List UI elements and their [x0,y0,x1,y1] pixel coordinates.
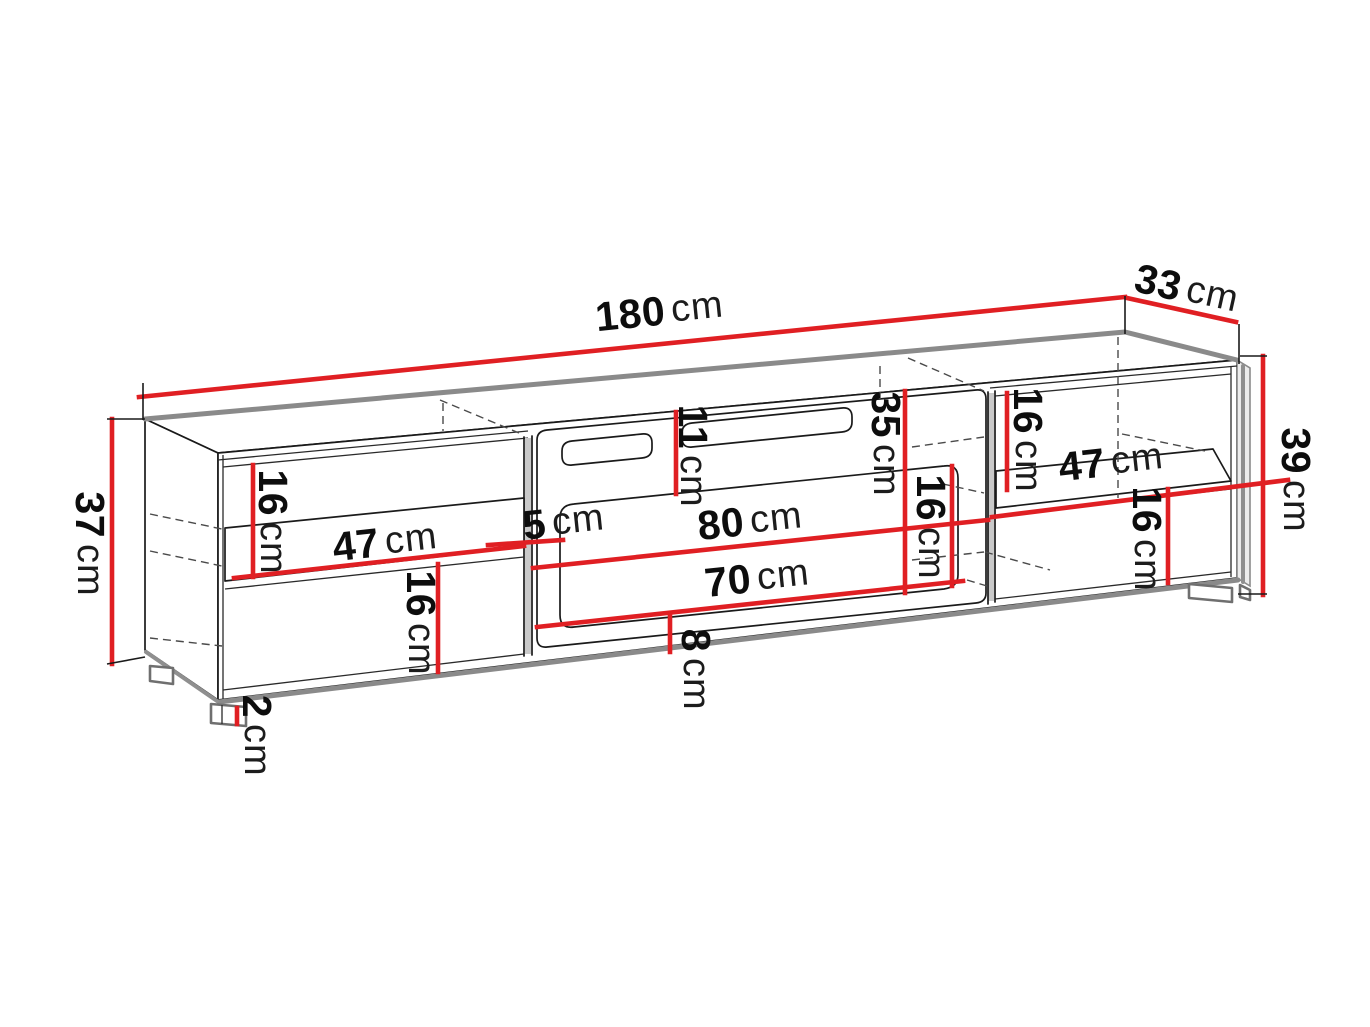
dimension-label-right-top-clearance: 16 cm [1005,387,1051,492]
svg-text:cm: cm [748,494,805,541]
svg-text:47: 47 [330,519,381,570]
svg-text:cm: cm [669,283,726,330]
dimension-label-height-left: 37 cm [67,491,113,596]
svg-text:cm: cm [1007,440,1049,493]
dimension-label-slot-top-offset: 11 cm [670,405,716,508]
svg-text:5: 5 [520,500,548,548]
foot-back-left [150,666,173,684]
svg-text:8: 8 [673,629,719,652]
svg-text:cm: cm [755,551,812,598]
dimension-label-height-right: 39 cm [1273,427,1319,532]
svg-text:16: 16 [1124,486,1170,533]
svg-text:cm: cm [69,544,111,597]
furniture-dimension-diagram: 180 cm 33 cm 37 cm 39 cm 16 cm 47 cm 5 c… [0,0,1370,1027]
svg-text:39: 39 [1273,427,1319,474]
svg-text:80: 80 [695,498,746,549]
svg-text:70: 70 [702,555,753,606]
dimension-label-door-height: 35 cm [863,391,909,496]
svg-text:cm: cm [1275,480,1317,533]
svg-text:cm: cm [1126,539,1168,592]
svg-text:16: 16 [908,474,954,521]
svg-text:cm: cm [672,455,714,508]
foot-back-right [1240,585,1250,600]
svg-text:cm: cm [400,623,442,676]
svg-text:cm: cm [1109,435,1166,483]
dimension-label-foot-height: 2 cm [234,695,280,777]
dimension-label-total-width: 180 cm [593,281,726,340]
dimension-label-left-top-clearance: 16 cm [250,469,296,574]
dimension-label-left-bottom-clearance: 16 cm [398,570,444,675]
dimension-label-right-bottom-clearance: 16 cm [1124,486,1170,591]
tv-stand-drawing: 180 cm 33 cm 37 cm 39 cm 16 cm 47 cm 5 c… [0,0,1370,1027]
svg-text:47: 47 [1056,439,1107,490]
dimension-label-mid-clearance: 16 cm [908,474,954,579]
svg-text:180: 180 [593,287,667,340]
svg-text:2: 2 [234,695,280,718]
svg-text:cm: cm [550,496,607,543]
svg-text:16: 16 [398,570,444,617]
svg-text:cm: cm [252,522,294,575]
svg-text:cm: cm [675,658,717,711]
svg-text:16: 16 [250,469,296,516]
svg-text:cm: cm [236,724,278,777]
svg-text:33: 33 [1131,255,1186,310]
svg-text:cm: cm [383,515,440,563]
svg-text:37: 37 [67,491,113,538]
foot-front-right [1189,584,1232,602]
svg-text:11: 11 [670,405,716,449]
svg-text:cm: cm [865,444,907,497]
svg-text:16: 16 [1005,387,1051,434]
dimension-label-groove-bottom-offset: 8 cm [673,629,719,711]
svg-text:35: 35 [863,391,909,438]
svg-text:cm: cm [910,527,952,580]
